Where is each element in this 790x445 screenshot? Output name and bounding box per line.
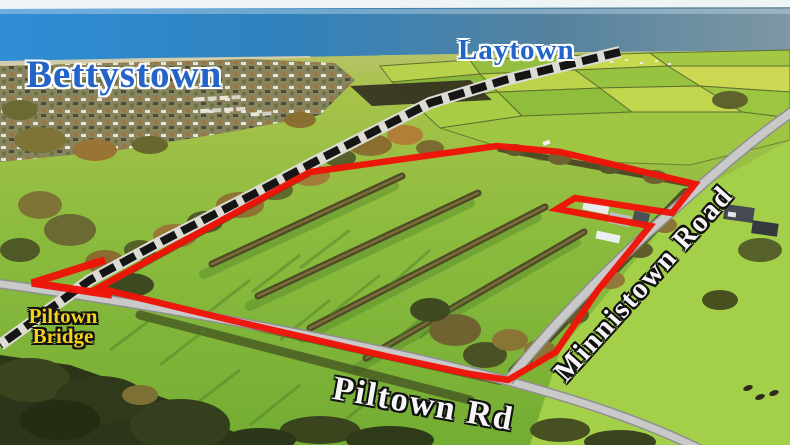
horizon-glare: [0, 9, 790, 14]
bridge-label-line1: Piltown: [14, 306, 112, 326]
town-label-bettystown: Bettystown: [26, 55, 222, 94]
town-label-laytown: Laytown: [458, 36, 575, 65]
annotated-aerial-map: Bettystown Laytown Piltown Bridge Piltow…: [0, 0, 790, 445]
bridge-label-piltown-bridge: Piltown Bridge: [14, 306, 112, 346]
bridge-label-line2: Bridge: [14, 326, 112, 346]
